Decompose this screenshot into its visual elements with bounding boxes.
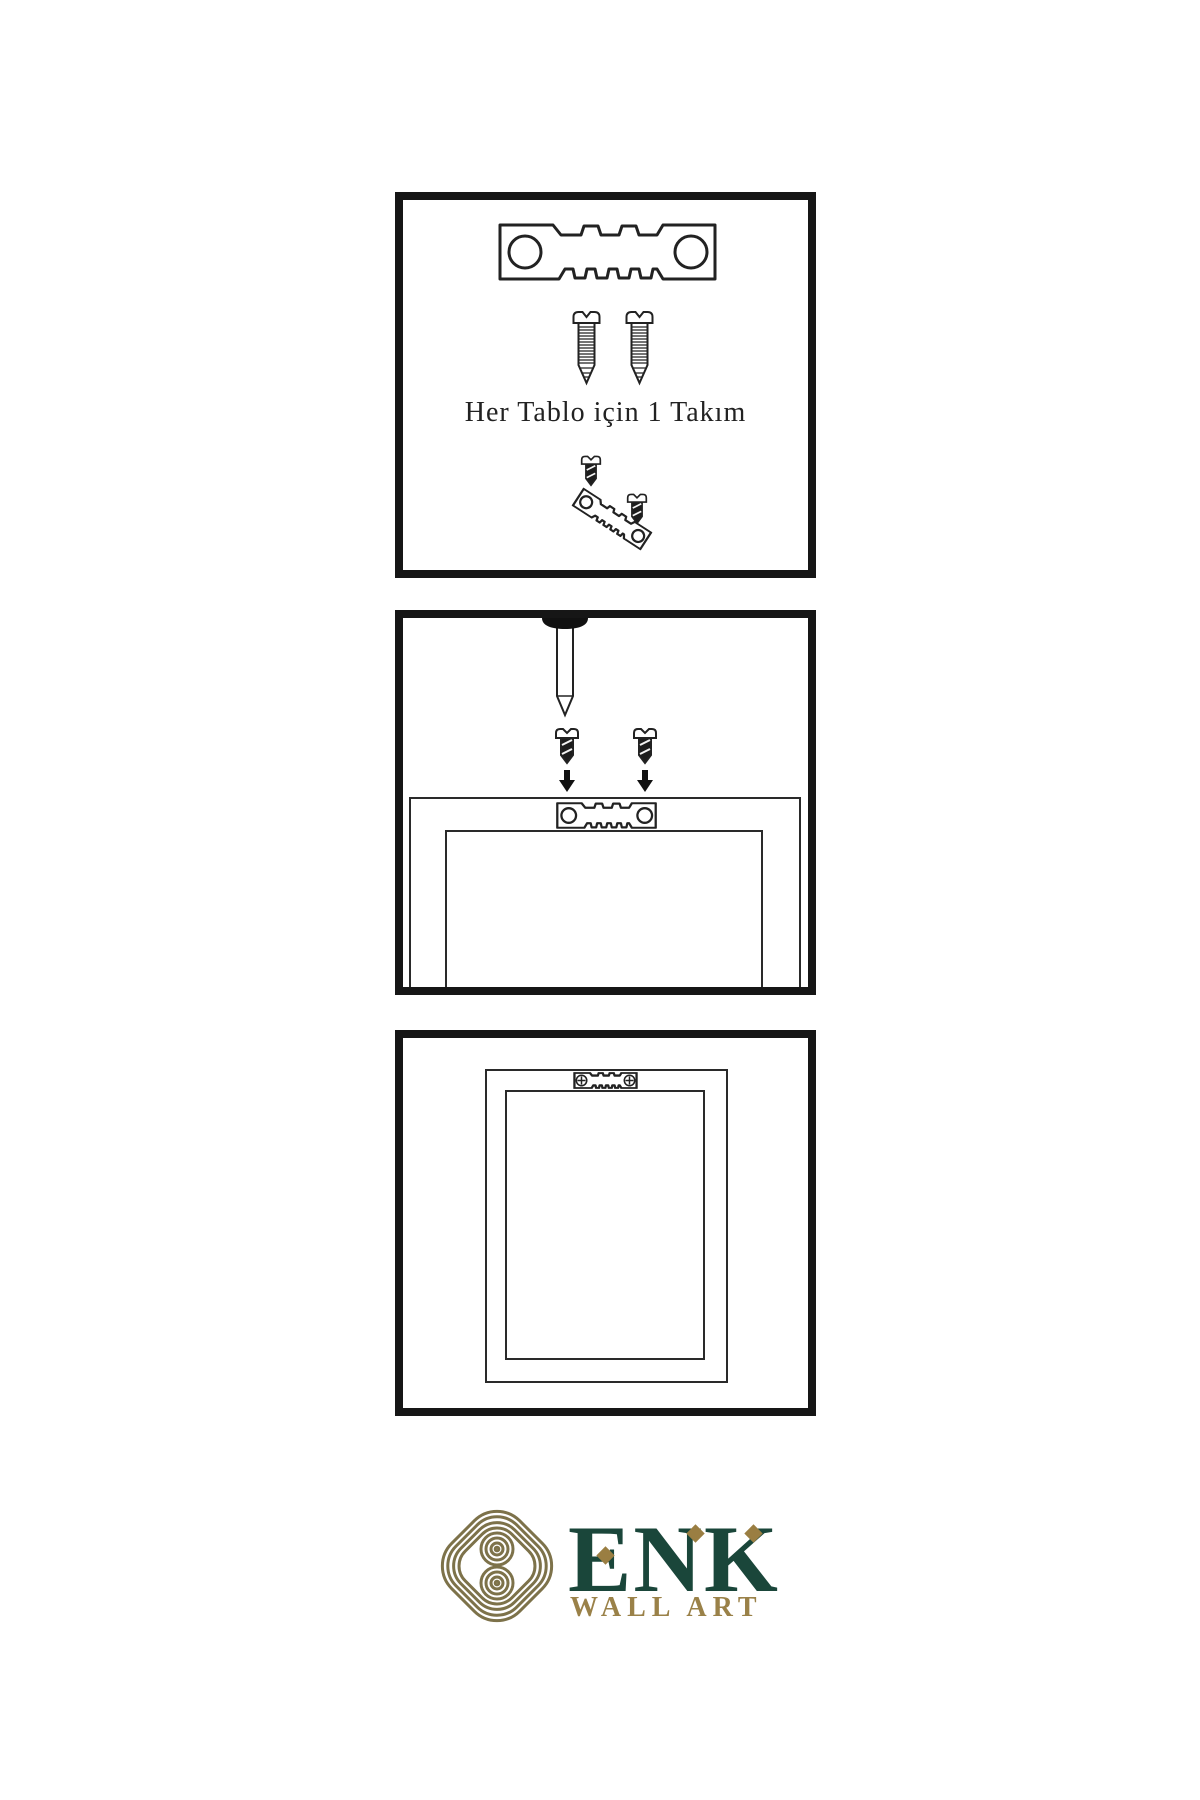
- screw-icon: [623, 307, 656, 387]
- panel-hardware-set: Her Tablo için 1 Takım: [395, 192, 816, 578]
- wall-nail-icon: [542, 618, 588, 718]
- hardware-set-caption: Her Tablo için 1 Takım: [403, 397, 808, 429]
- hanger-with-screws-group: [560, 445, 670, 555]
- panel-hanging-result: [395, 1030, 816, 1416]
- dark-screw-icon: [580, 453, 602, 487]
- down-arrow-icon: [637, 770, 653, 792]
- frame-back-inner-edge: [445, 830, 763, 987]
- dark-screw-icon: [632, 725, 658, 765]
- phillips-screw-icon: [623, 1074, 636, 1087]
- panel-wall-mounting: [395, 610, 816, 995]
- sawtooth-hanger-icon: [555, 802, 658, 829]
- knot-logo-icon: [438, 1500, 556, 1632]
- dark-screw-icon: [626, 491, 648, 525]
- instruction-sheet: Her Tablo için 1 Takım: [0, 0, 1200, 1800]
- frame-back-inner-edge: [505, 1090, 705, 1360]
- sawtooth-hanger-icon: [495, 223, 720, 281]
- brand-tagline: WALL ART: [570, 1594, 763, 1622]
- screw-icon: [570, 307, 603, 387]
- down-arrow-icon: [559, 770, 575, 792]
- dark-screw-icon: [554, 725, 580, 765]
- phillips-screw-icon: [575, 1074, 588, 1087]
